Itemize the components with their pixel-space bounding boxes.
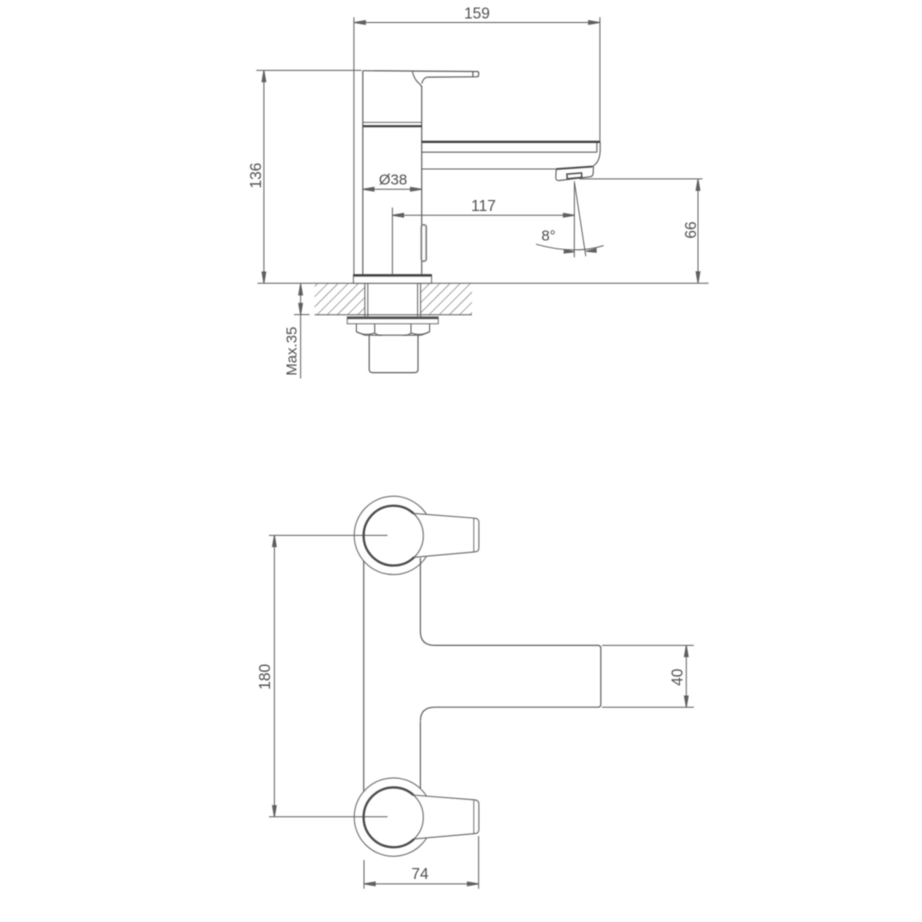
svg-text:Ø38: Ø38 [379, 172, 407, 189]
svg-text:8°: 8° [541, 228, 555, 245]
svg-text:Max.35: Max.35 [284, 327, 301, 376]
svg-text:180: 180 [257, 663, 274, 689]
svg-text:66: 66 [683, 221, 700, 238]
svg-text:136: 136 [248, 163, 265, 189]
svg-text:40: 40 [669, 668, 686, 686]
svg-text:159: 159 [464, 5, 490, 22]
svg-text:74: 74 [411, 866, 429, 883]
svg-text:117: 117 [471, 198, 496, 215]
